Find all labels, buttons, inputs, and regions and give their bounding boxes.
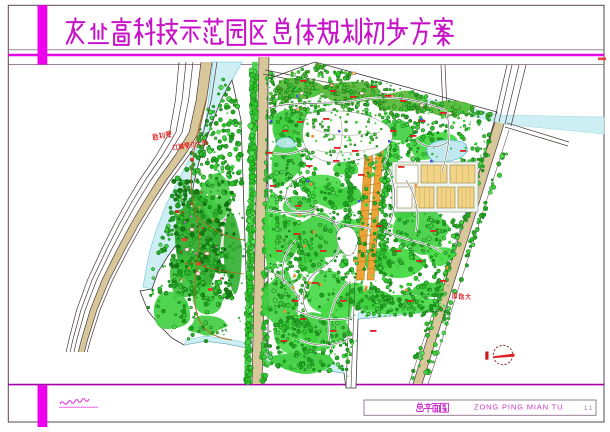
svg-text:1 1: 1 1	[584, 406, 593, 412]
svg-text:ZONG PING MIAN TU: ZONG PING MIAN TU	[474, 403, 563, 412]
